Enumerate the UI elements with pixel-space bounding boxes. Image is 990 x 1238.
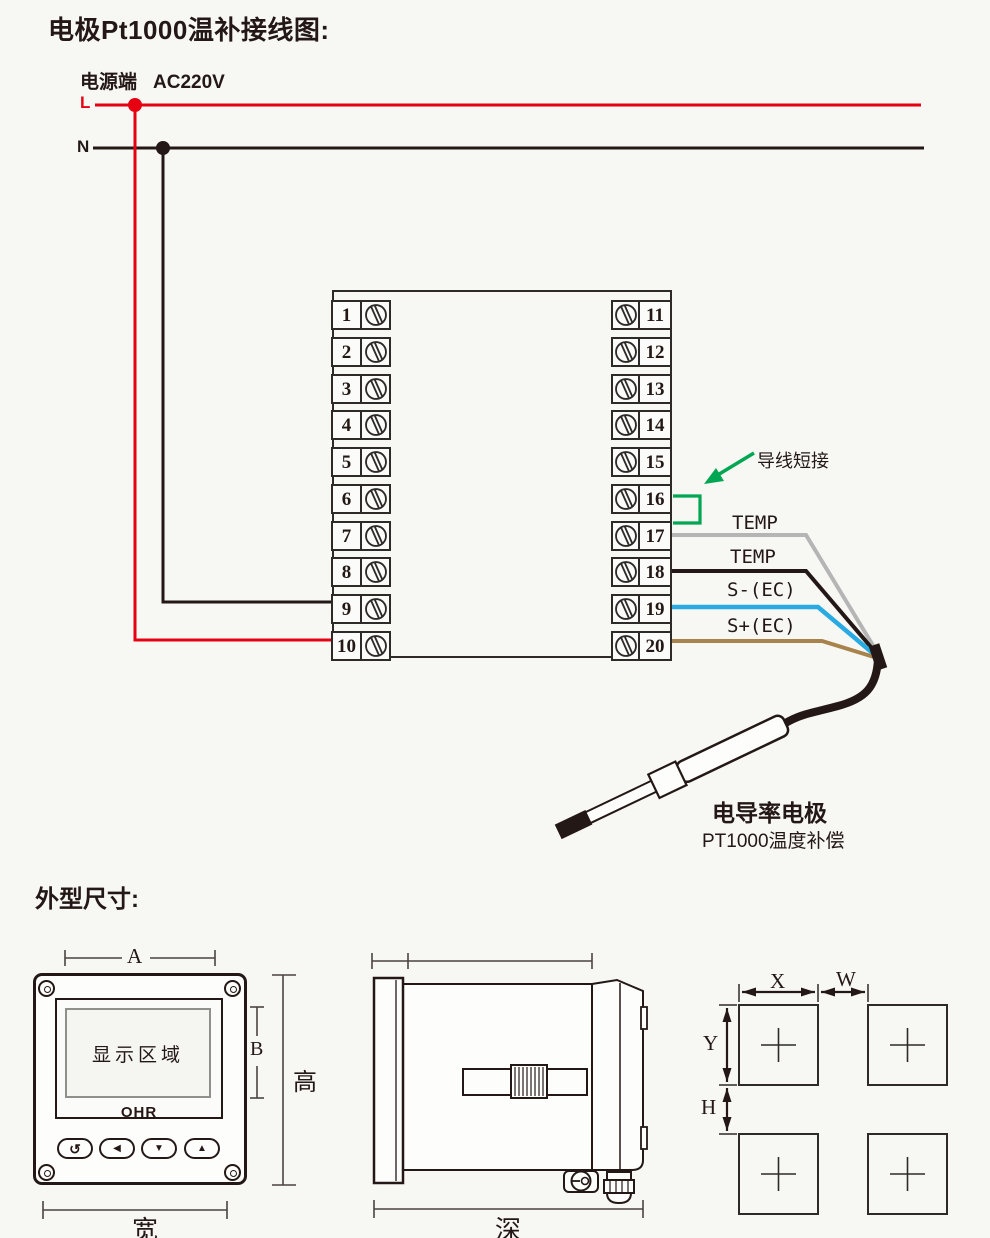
wire-label-s-minus: S-(EC) — [727, 579, 796, 601]
corner-screw-icon — [38, 980, 55, 997]
side-view — [372, 953, 647, 1218]
wire-label-temp-2: TEMP — [730, 546, 776, 568]
dim-label-width: 宽 — [128, 1210, 162, 1238]
terminal-9: 9 — [331, 594, 391, 624]
screw-icon — [614, 450, 638, 474]
terminal-2: 2 — [331, 337, 391, 367]
terminal-block: 1234567891011121314151617181920 — [332, 290, 672, 658]
screw-icon — [614, 597, 638, 621]
screw-icon — [364, 560, 388, 584]
jumper-arrow-head — [704, 468, 724, 484]
wire-label-temp-1: TEMP — [732, 512, 778, 534]
screw-icon — [614, 524, 638, 548]
screw-icon — [364, 450, 388, 474]
corner-screw-icon — [224, 1164, 241, 1181]
power-terminal-label: 电源端AC220V — [80, 67, 225, 94]
terminal-17: 17 — [611, 521, 672, 551]
cable-ferrule — [874, 645, 882, 669]
screw-icon — [364, 303, 388, 327]
terminal-1: 1 — [331, 300, 391, 330]
up-triangle-icon: ▲ — [197, 1144, 207, 1154]
screw-icon — [364, 377, 388, 401]
dim-label-h: H — [701, 1095, 716, 1120]
left-button: ◀ — [99, 1138, 135, 1159]
page-title: 电极Pt1000温补接线图: — [48, 10, 330, 47]
terminal-18: 18 — [611, 557, 672, 587]
down-triangle-icon: ▼ — [154, 1144, 164, 1154]
terminal-12: 12 — [611, 337, 672, 367]
neutral-feed-wire — [163, 148, 332, 602]
terminal-5: 5 — [331, 447, 391, 477]
live-feed-wire — [135, 105, 332, 640]
up-button: ▲ — [184, 1138, 220, 1159]
screw-icon — [614, 634, 638, 658]
terminal-3: 3 — [331, 374, 391, 404]
neutral-junction-dot — [156, 141, 170, 155]
live-label: L — [80, 93, 90, 113]
cutout-view — [719, 984, 947, 1214]
brand-logo: OHR — [0, 1104, 280, 1121]
screw-icon — [614, 413, 638, 437]
display-area: 显示区域 — [65, 1008, 211, 1098]
terminal-16: 16 — [611, 484, 672, 514]
dim-label-x: X — [770, 969, 785, 994]
jumper-label: 导线短接 — [757, 447, 829, 473]
terminal-6: 6 — [331, 484, 391, 514]
dim-label-height: 高 — [293, 1062, 317, 1097]
corner-screw-icon — [224, 980, 241, 997]
screw-icon — [614, 487, 638, 511]
loop-arrow-icon: ↺ — [69, 1142, 81, 1156]
dim-label-y: Y — [703, 1031, 718, 1056]
electrode-name: 电导率电极 — [712, 794, 827, 828]
screw-icon — [364, 487, 388, 511]
screw-icon — [614, 560, 638, 584]
terminal-14: 14 — [611, 410, 672, 440]
screw-icon — [614, 377, 638, 401]
loop-button: ↺ — [57, 1138, 93, 1159]
dim-label-w: W — [836, 967, 856, 992]
electrode-subtitle: PT1000温度补偿 — [702, 826, 845, 853]
voltage-label: AC220V — [153, 72, 225, 93]
corner-screw-icon — [38, 1164, 55, 1181]
screw-icon — [614, 303, 638, 327]
live-junction-dot — [128, 98, 142, 112]
jumper-wire — [673, 496, 700, 523]
screw-icon — [364, 634, 388, 658]
terminal-19: 19 — [611, 594, 672, 624]
power-label: 电源端 — [80, 72, 137, 93]
electrode-cable — [784, 658, 878, 724]
jumper-arrow-shaft — [716, 453, 754, 476]
screw-icon — [364, 597, 388, 621]
terminal-20: 20 — [611, 631, 672, 661]
display-area-label: 显示区域 — [92, 1040, 184, 1067]
section-heading-dimensions: 外型尺寸: — [35, 879, 139, 914]
s-plus-wire-brown — [672, 641, 874, 657]
neutral-label: N — [77, 137, 89, 157]
screw-icon — [364, 524, 388, 548]
dim-label-depth: 深 — [491, 1210, 525, 1238]
terminal-13: 13 — [611, 374, 672, 404]
wire-label-s-plus: S+(EC) — [727, 615, 796, 637]
screw-icon — [364, 340, 388, 364]
terminal-7: 7 — [331, 521, 391, 551]
down-button: ▼ — [141, 1138, 177, 1159]
terminal-8: 8 — [331, 557, 391, 587]
screw-icon — [364, 413, 388, 437]
terminal-10: 10 — [331, 631, 391, 661]
terminal-15: 15 — [611, 447, 672, 477]
screw-icon — [614, 340, 638, 364]
terminal-11: 11 — [611, 300, 672, 330]
left-triangle-icon: ◀ — [113, 1144, 121, 1154]
dim-label-b: B — [250, 1038, 263, 1061]
terminal-4: 4 — [331, 410, 391, 440]
dim-label-a: A — [127, 944, 142, 969]
page: 电极Pt1000温补接线图: 电源端AC220V L N 导线短接 TEMP T… — [0, 0, 990, 1238]
